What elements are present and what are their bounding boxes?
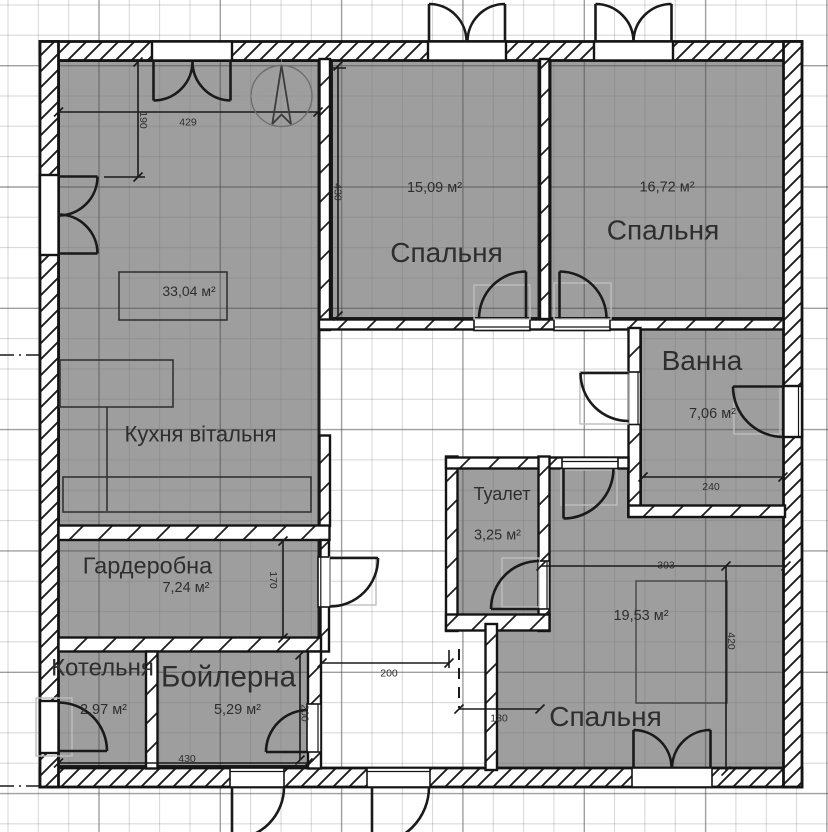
svg-text:2,97 м²: 2,97 м²: [80, 702, 127, 718]
svg-text:420: 420: [725, 632, 737, 650]
svg-text:15,09 м²: 15,09 м²: [407, 180, 462, 196]
svg-text:Спальня: Спальня: [390, 237, 503, 268]
svg-text:5,29 м²: 5,29 м²: [214, 702, 261, 718]
svg-text:33,04 м²: 33,04 м²: [162, 283, 216, 299]
svg-text:Бойлерна: Бойлерна: [161, 661, 297, 694]
svg-text:170: 170: [267, 571, 279, 589]
svg-text:Спальня: Спальня: [549, 701, 662, 732]
svg-text:Котельня: Котельня: [51, 655, 154, 682]
svg-text:Туалет: Туалет: [474, 484, 531, 504]
svg-text:7,24 м²: 7,24 м²: [162, 580, 209, 596]
svg-text:430: 430: [332, 183, 344, 201]
svg-text:16,72 м²: 16,72 м²: [639, 180, 694, 196]
svg-text:200: 200: [299, 704, 311, 722]
svg-text:130: 130: [490, 713, 508, 725]
svg-text:190: 190: [137, 111, 149, 129]
svg-text:Гардеробна: Гардеробна: [83, 553, 213, 579]
svg-text:200: 200: [380, 668, 398, 680]
svg-text:7,06 м²: 7,06 м²: [689, 406, 736, 422]
svg-text:3,25 м²: 3,25 м²: [474, 528, 521, 544]
svg-text:240: 240: [702, 481, 720, 493]
svg-text:Ванна: Ванна: [662, 345, 743, 376]
svg-text:Кухня вітальня: Кухня вітальня: [125, 422, 277, 447]
svg-text:393: 393: [657, 560, 675, 572]
svg-text:19,53 м²: 19,53 м²: [613, 608, 668, 624]
svg-text:430: 430: [178, 753, 196, 765]
svg-text:Спальня: Спальня: [607, 215, 720, 246]
svg-text:429: 429: [179, 117, 197, 129]
